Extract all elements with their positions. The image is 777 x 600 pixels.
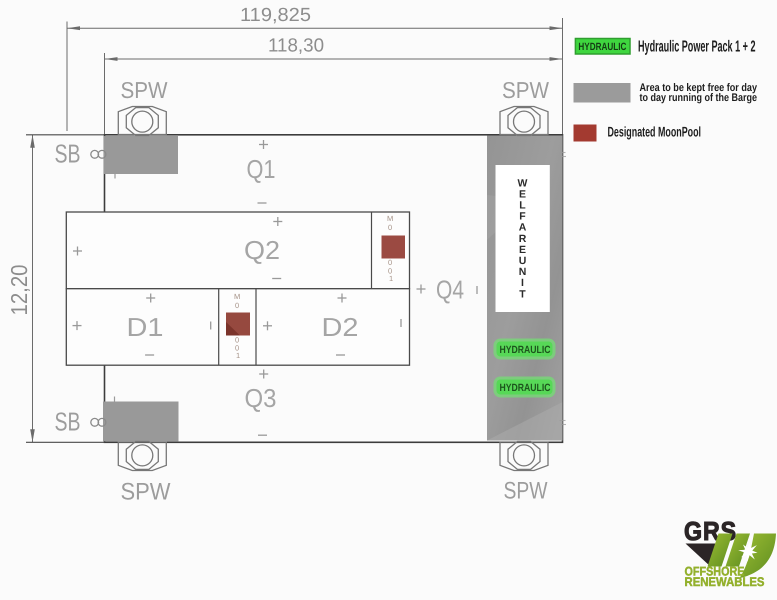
svg-text:HYDRAULIC: HYDRAULIC — [500, 344, 551, 356]
svg-text:0: 0 — [235, 301, 239, 310]
svg-text:Q4: Q4 — [436, 275, 464, 305]
svg-text:SB: SB — [55, 407, 81, 437]
svg-text:Designated MoonPool: Designated MoonPool — [608, 123, 702, 139]
svg-text:SPW: SPW — [504, 478, 548, 505]
svg-text:12,20: 12,20 — [6, 265, 32, 316]
svg-text:D2: D2 — [322, 312, 359, 342]
svg-text:0: 0 — [388, 223, 392, 232]
svg-text:D1: D1 — [127, 312, 164, 342]
svg-text:119,825: 119,825 — [240, 5, 311, 26]
svg-text:Q2: Q2 — [244, 235, 280, 265]
svg-text:HYDRAULIC: HYDRAULIC — [500, 382, 551, 394]
svg-text:Hydraulic Power Pack 1 + 2: Hydraulic Power Pack 1 + 2 — [638, 39, 756, 56]
svg-text:Q3: Q3 — [245, 383, 277, 413]
svg-text:SPW: SPW — [121, 77, 168, 103]
svg-text:SPW: SPW — [121, 479, 171, 506]
svg-text:M: M — [387, 214, 393, 223]
svg-text:HYDRAULIC: HYDRAULIC — [578, 41, 626, 53]
svg-text:T: T — [519, 288, 526, 300]
svg-text:to day running of the Barge: to day running of the Barge — [640, 92, 758, 104]
svg-text:Q1: Q1 — [247, 154, 276, 184]
svg-text:M: M — [234, 292, 240, 301]
svg-text:SPW: SPW — [502, 77, 549, 103]
svg-text:118,30: 118,30 — [268, 36, 324, 57]
svg-text:RENEWABLES: RENEWABLES — [685, 575, 765, 589]
svg-text:1: 1 — [389, 274, 393, 283]
svg-text:1: 1 — [236, 351, 240, 360]
svg-text:SB: SB — [55, 139, 81, 169]
